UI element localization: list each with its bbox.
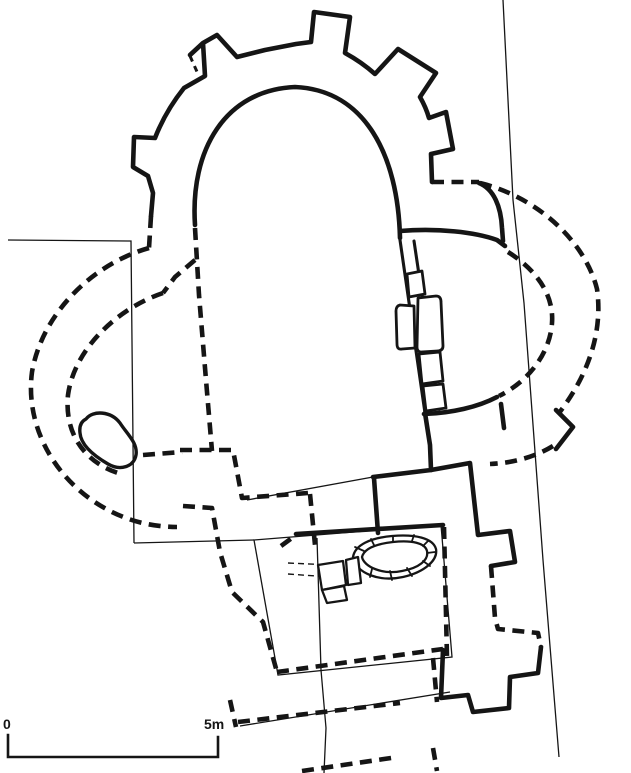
outer-south-wall [238,703,400,722]
scale-zero-label: 0 [3,716,11,732]
chancel-passage-west-wall [310,494,315,545]
west-conch-outer-foundation [31,248,177,527]
excavation-trench-lines [8,0,559,773]
east-conch-outer-foundation-tail [490,446,553,464]
rotunda-buttress-dashed-edge [190,56,198,74]
trench-line-west-L [8,240,134,543]
nave-west-wall [195,228,212,451]
south-porch-west-jamb [433,658,437,702]
grave-west-stone-3 [322,586,347,603]
west-conch [31,248,195,527]
nave-southwest-wall [180,450,308,498]
trench-line-mid-horizontal [134,540,254,543]
outermost-south-wall-stub [433,748,437,771]
scanned-plan-page: 0 5m [0,0,631,773]
door-jamb-block-4 [423,384,446,411]
scale-bar-line [8,735,218,757]
rotunda-apse-inner-wall [195,87,400,238]
west-conch-fragment-to-nave-wall [143,452,182,455]
east-conch [480,183,598,464]
door-jamb-block-2 [417,296,443,352]
west-conch-inner-foundation [68,293,163,473]
wall-fragment-in-west-conch [80,413,136,467]
trench-line-east-vertical [503,0,559,757]
door-jamb-block-3 [419,352,443,384]
east-room-east-wall-lower [491,566,541,647]
nave [180,228,504,545]
south-porch [441,647,541,712]
northeast-pocket-wall-upper [479,183,503,241]
door-jamb-block-1 [407,271,425,297]
outer-south-wall-corner [230,700,236,727]
west-conch-inner-connector [163,260,195,293]
chancel-passage-east-wall [374,478,378,533]
rotunda-to-west-conch-wall [149,216,151,248]
grave-stone-setting [288,535,436,603]
rotunda-outer-wall-with-buttresses [133,12,453,216]
east-conch-outer-foundation [480,183,598,413]
south-room-north-wall [296,525,443,534]
scale-bar: 0 5m [3,716,224,757]
grave-west-stone-2 [346,557,361,585]
east-conch-buttress-notch [556,410,573,449]
floor-plan-drawing: 0 5m [0,0,631,773]
outermost-south-wall [302,757,398,771]
north-rotunda [133,12,505,248]
southeast-wall-stub [501,404,504,428]
south-room-east-wall [444,527,447,658]
nave-southeast-corner-wall [373,413,431,477]
door-jamb-block-west [396,305,415,349]
scale-5m-label: 5m [204,716,224,732]
